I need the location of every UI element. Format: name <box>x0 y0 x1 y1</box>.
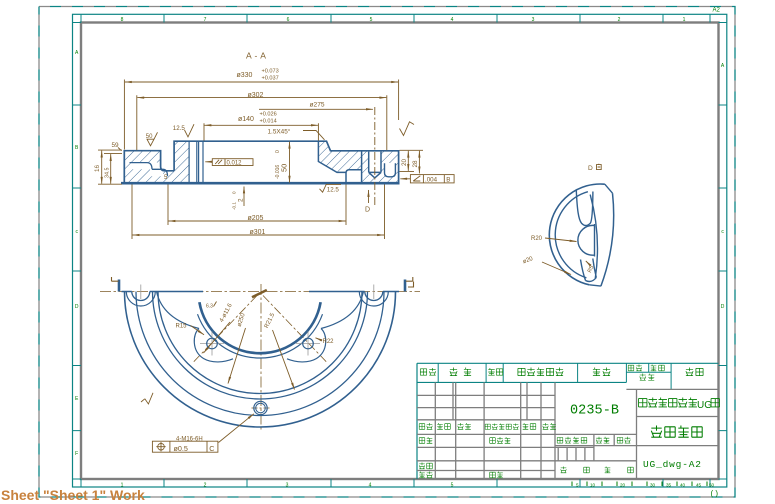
svg-text:4: 4 <box>369 483 372 489</box>
svg-text:+0.037: +0.037 <box>262 76 279 82</box>
svg-text:ø302: ø302 <box>248 92 264 99</box>
svg-text:6.3: 6.3 <box>206 304 213 310</box>
svg-text:R15: R15 <box>176 324 188 330</box>
svg-text:16: 16 <box>94 164 101 172</box>
svg-text:5: 5 <box>451 483 454 489</box>
svg-text:34.5: 34.5 <box>105 168 111 179</box>
svg-text:35: 35 <box>666 483 672 488</box>
svg-text:ø140: ø140 <box>238 116 254 123</box>
svg-text:7: 7 <box>204 17 207 23</box>
svg-text:4-M16-6H: 4-M16-6H <box>176 436 203 442</box>
svg-text:2: 2 <box>204 483 207 489</box>
svg-text:R20: R20 <box>531 236 543 242</box>
svg-text:0235-B: 0235-B <box>570 404 619 419</box>
svg-text:2: 2 <box>618 17 621 23</box>
svg-text:D: D <box>721 304 725 310</box>
svg-text:ø301: ø301 <box>250 229 266 236</box>
svg-text:F: F <box>75 451 78 457</box>
svg-text:+0.014: +0.014 <box>260 118 277 124</box>
svg-text:3: 3 <box>532 17 535 23</box>
svg-text:+0.073: +0.073 <box>262 69 279 75</box>
svg-text:+0.026: +0.026 <box>260 111 277 117</box>
svg-text:0: 0 <box>232 191 237 194</box>
svg-text:.004: .004 <box>425 177 438 184</box>
svg-text:20: 20 <box>401 158 408 166</box>
svg-text:ø275: ø275 <box>310 101 325 108</box>
svg-text:8: 8 <box>121 17 124 23</box>
svg-text:50: 50 <box>709 483 715 488</box>
svg-text:0.012: 0.012 <box>227 160 243 166</box>
svg-text:ø0.5: ø0.5 <box>174 444 188 453</box>
svg-text:3: 3 <box>286 483 289 489</box>
svg-text:D: D <box>365 207 370 214</box>
svg-text:45: 45 <box>696 483 702 488</box>
svg-text:A - A: A - A <box>246 51 266 61</box>
svg-text:-0.1: -0.1 <box>232 202 237 210</box>
svg-text:12.5: 12.5 <box>173 125 186 132</box>
svg-text:1.5X45°: 1.5X45° <box>268 128 291 136</box>
svg-text:D: D <box>588 165 593 172</box>
svg-text:40: 40 <box>680 483 686 488</box>
svg-text:28: 28 <box>412 160 419 168</box>
svg-text:UG: UG <box>697 400 712 411</box>
svg-text:20: 20 <box>620 483 626 488</box>
svg-text:30: 30 <box>650 483 656 488</box>
svg-text:4: 4 <box>451 17 454 23</box>
svg-text:12.5: 12.5 <box>327 186 340 193</box>
svg-text:Sheet "Sheet 1" Work: Sheet "Sheet 1" Work <box>1 487 145 503</box>
svg-text:ø205: ø205 <box>248 215 264 222</box>
svg-text:B: B <box>446 177 450 184</box>
svg-text:C: C <box>209 444 214 453</box>
svg-text:UG_dwg-A2: UG_dwg-A2 <box>643 459 701 470</box>
svg-text:5: 5 <box>576 483 579 488</box>
svg-text:A2: A2 <box>713 8 721 14</box>
svg-text:D: D <box>75 304 79 310</box>
svg-text:R22: R22 <box>323 339 335 345</box>
svg-text:0: 0 <box>275 150 281 153</box>
svg-text:2: 2 <box>238 198 245 202</box>
svg-text:ø330: ø330 <box>237 72 253 79</box>
svg-text:6: 6 <box>287 17 290 23</box>
svg-text:-0.016: -0.016 <box>275 165 281 179</box>
svg-text:5: 5 <box>370 17 373 23</box>
svg-text:( ): ( ) <box>711 489 719 498</box>
svg-text:10: 10 <box>590 483 596 488</box>
svg-text:1: 1 <box>683 17 686 23</box>
